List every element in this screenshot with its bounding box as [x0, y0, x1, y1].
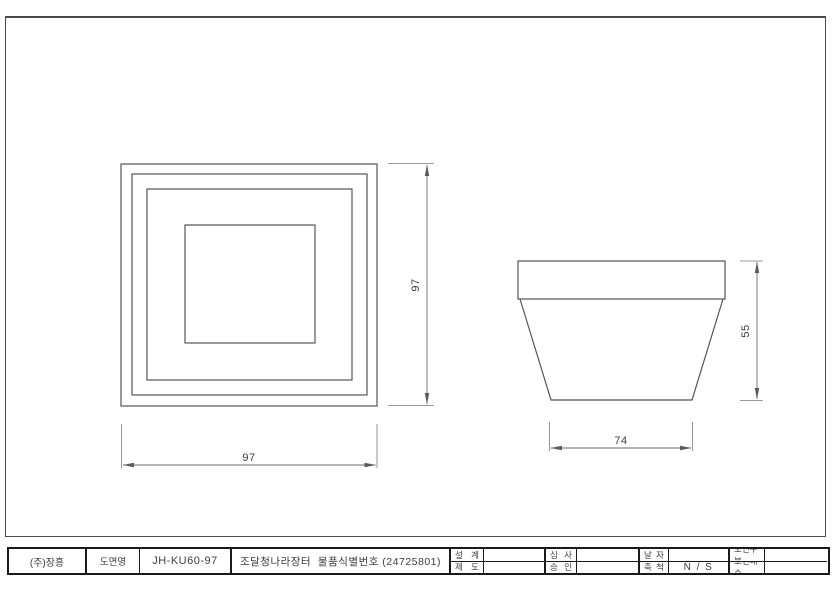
drawing-sheet: { "drawing": { "plan_view": { "width_dim…	[0, 0, 835, 591]
sheet-info-value-column	[765, 549, 827, 573]
drawing-code: JH-KU60-97	[140, 549, 232, 573]
plan-height-dim-text: 97	[410, 278, 422, 291]
review-approve-value-column	[577, 549, 640, 573]
approve-label-text: 승 인	[546, 562, 576, 574]
date-scale-label-column: 날 자 축 척	[640, 549, 669, 573]
scale-value: N / S	[669, 562, 728, 574]
date-value	[669, 549, 728, 562]
side-body-trapezoid	[520, 299, 723, 400]
date-scale-value-column: N / S	[669, 549, 730, 573]
approve-value	[577, 562, 638, 574]
drawing-name-label: 도면명	[87, 549, 140, 573]
draft-label: 제 도	[451, 562, 483, 574]
drawing-title: 조달청나라장터 물품식별번호 (24725801)	[232, 549, 451, 573]
review-label: 심 사	[546, 549, 576, 562]
plan-height-dimension: 97	[388, 164, 434, 406]
sheet-class-value	[765, 549, 827, 562]
sheet-count-label-text: 도면매수	[730, 562, 764, 574]
side-base-width-dimension: 74	[550, 422, 693, 451]
sheet-class-label: 도면구분	[730, 549, 764, 562]
design-draft-label-column: 설 계 제 도	[451, 549, 484, 573]
review-label-text: 심 사	[546, 549, 576, 561]
title-block: (주)장흥 도면명 JH-KU60-97 조달청나라장터 물품식별번호 (247…	[7, 547, 830, 575]
side-view	[518, 261, 725, 400]
sheet-count-label: 도면매수	[730, 562, 764, 574]
side-height-dimension: 55	[740, 261, 763, 401]
plan-width-dimension: 97	[122, 424, 378, 468]
plan-second-square	[132, 174, 367, 395]
plan-outer-square	[121, 164, 377, 406]
sheet-class-label-text: 도면구분	[730, 549, 764, 562]
scale-label: 축 척	[640, 562, 668, 574]
side-base-width-dim-text: 74	[614, 435, 627, 447]
design-label-text: 설 계	[451, 549, 483, 561]
design-label: 설 계	[451, 549, 483, 562]
plan-width-dim-text: 97	[242, 452, 255, 464]
approve-label: 승 인	[546, 562, 576, 574]
sheet-count-value	[765, 562, 827, 574]
side-rim	[518, 261, 725, 299]
draft-value	[484, 562, 544, 574]
plan-inner-square	[185, 225, 315, 343]
scale-label-text: 축 척	[640, 562, 668, 574]
review-value	[577, 549, 638, 562]
side-height-dim-text: 55	[740, 324, 752, 337]
drawing-canvas: 97 97 55 74	[0, 0, 835, 591]
date-label-text: 날 자	[640, 549, 668, 561]
company-name: (주)장흥	[9, 549, 87, 573]
date-label: 날 자	[640, 549, 668, 562]
review-approve-label-column: 심 사 승 인	[546, 549, 577, 573]
draft-label-text: 제 도	[451, 562, 483, 574]
design-value	[484, 549, 544, 562]
plan-third-square	[147, 189, 352, 380]
design-draft-value-column	[484, 549, 546, 573]
plan-view	[121, 164, 377, 406]
sheet-info-label-column: 도면구분 도면매수	[730, 549, 765, 573]
